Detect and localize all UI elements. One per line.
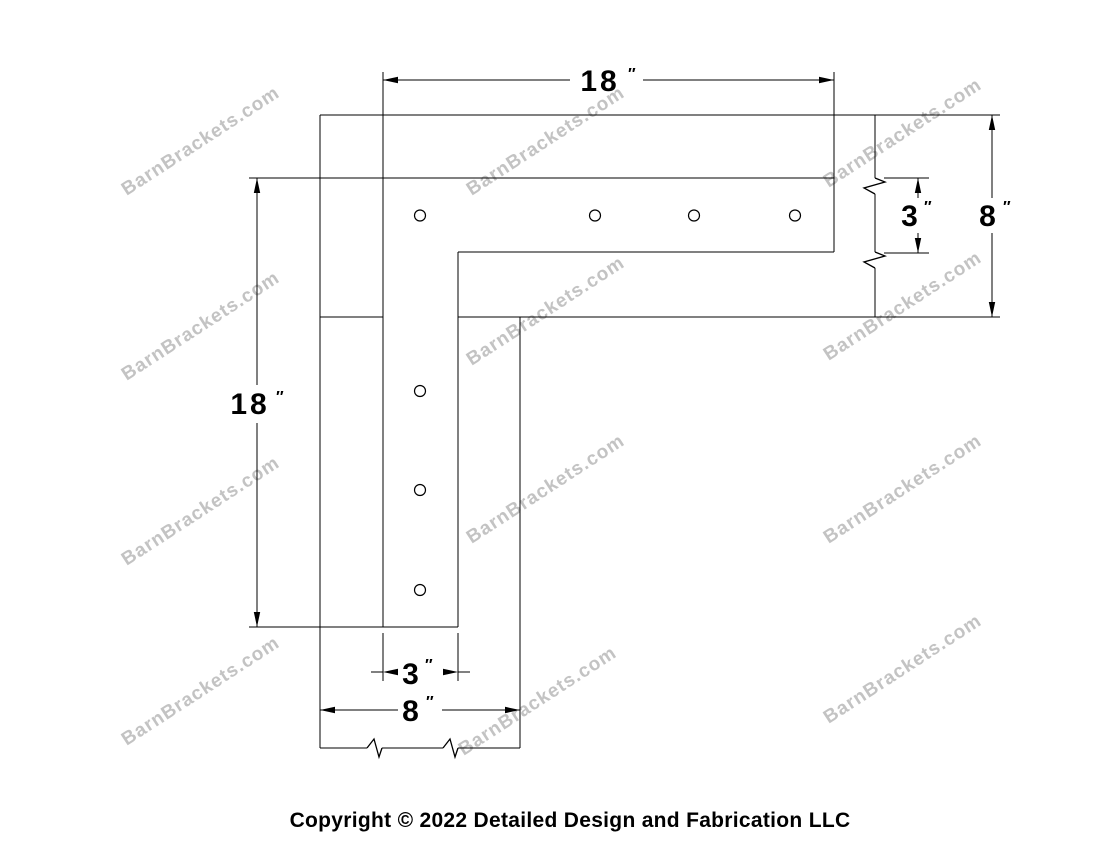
bracket-diagram: BarnBrackets.com BarnBrackets.com BarnBr…	[0, 0, 1100, 850]
arrowhead-down-icon	[915, 238, 921, 253]
arrowhead-left-icon	[383, 77, 398, 83]
arrowhead-down-icon	[989, 302, 995, 317]
bolt-hole	[415, 485, 426, 496]
dimension-strap-width-right: 3 ″	[884, 178, 933, 253]
dimension-value: 18	[580, 65, 619, 98]
strap-outline	[383, 178, 834, 627]
arrowhead-down-icon	[254, 612, 260, 627]
bolt-hole	[415, 386, 426, 397]
watermark-text: BarnBrackets.com	[118, 267, 284, 385]
watermark-text: BarnBrackets.com	[118, 452, 284, 570]
dimension-strap-length-left: 18 ″	[230, 178, 383, 627]
watermark-text: BarnBrackets.com	[455, 642, 621, 760]
break-mark-icon	[864, 178, 885, 194]
arrowhead-up-icon	[254, 178, 260, 193]
inch-mark: ″	[1003, 199, 1012, 216]
watermark-text: BarnBrackets.com	[820, 247, 986, 365]
bolt-hole	[590, 210, 601, 221]
bolt-hole	[415, 210, 426, 221]
dimension-strap-length-top: 18 ″	[383, 65, 834, 178]
inch-mark: ″	[628, 66, 637, 83]
dimension-value: 8	[402, 695, 422, 728]
inch-mark: ″	[924, 199, 933, 216]
inch-mark: ″	[426, 694, 435, 711]
dimension-value: 18	[230, 388, 269, 421]
watermark-text: BarnBrackets.com	[463, 82, 629, 200]
arrowhead-left-icon	[320, 707, 335, 713]
watermark-text: BarnBrackets.com	[118, 632, 284, 750]
watermark-text: BarnBrackets.com	[820, 74, 986, 192]
watermark-text: BarnBrackets.com	[820, 430, 986, 548]
dimension-value: 3	[402, 658, 422, 691]
watermark-text: BarnBrackets.com	[463, 430, 629, 548]
watermark-text: BarnBrackets.com	[463, 252, 629, 370]
watermark-text: BarnBrackets.com	[118, 82, 284, 200]
arrowhead-up-icon	[915, 178, 921, 193]
arrowhead-right-icon	[443, 669, 458, 675]
bolt-hole	[790, 210, 801, 221]
copyright-text: Copyright © 2022 Detailed Design and Fab…	[290, 809, 851, 832]
arrowhead-left-icon	[383, 669, 398, 675]
watermark-text: BarnBrackets.com	[820, 610, 986, 728]
bolt-hole	[689, 210, 700, 221]
arrowhead-up-icon	[989, 115, 995, 130]
bolt-hole	[415, 585, 426, 596]
arrowhead-right-icon	[819, 77, 834, 83]
dimension-strap-width-bottom: 3 ″	[371, 633, 470, 691]
inch-mark: ″	[276, 389, 285, 406]
dimension-value: 8	[979, 200, 999, 233]
dimension-beam-depth-right: 8 ″	[979, 115, 1012, 317]
dimension-value: 3	[901, 200, 921, 233]
break-mark-icon	[367, 739, 382, 757]
inch-mark: ″	[425, 657, 434, 674]
drawing-sheet: BarnBrackets.com BarnBrackets.com BarnBr…	[0, 0, 1100, 850]
break-mark-icon	[864, 252, 885, 268]
